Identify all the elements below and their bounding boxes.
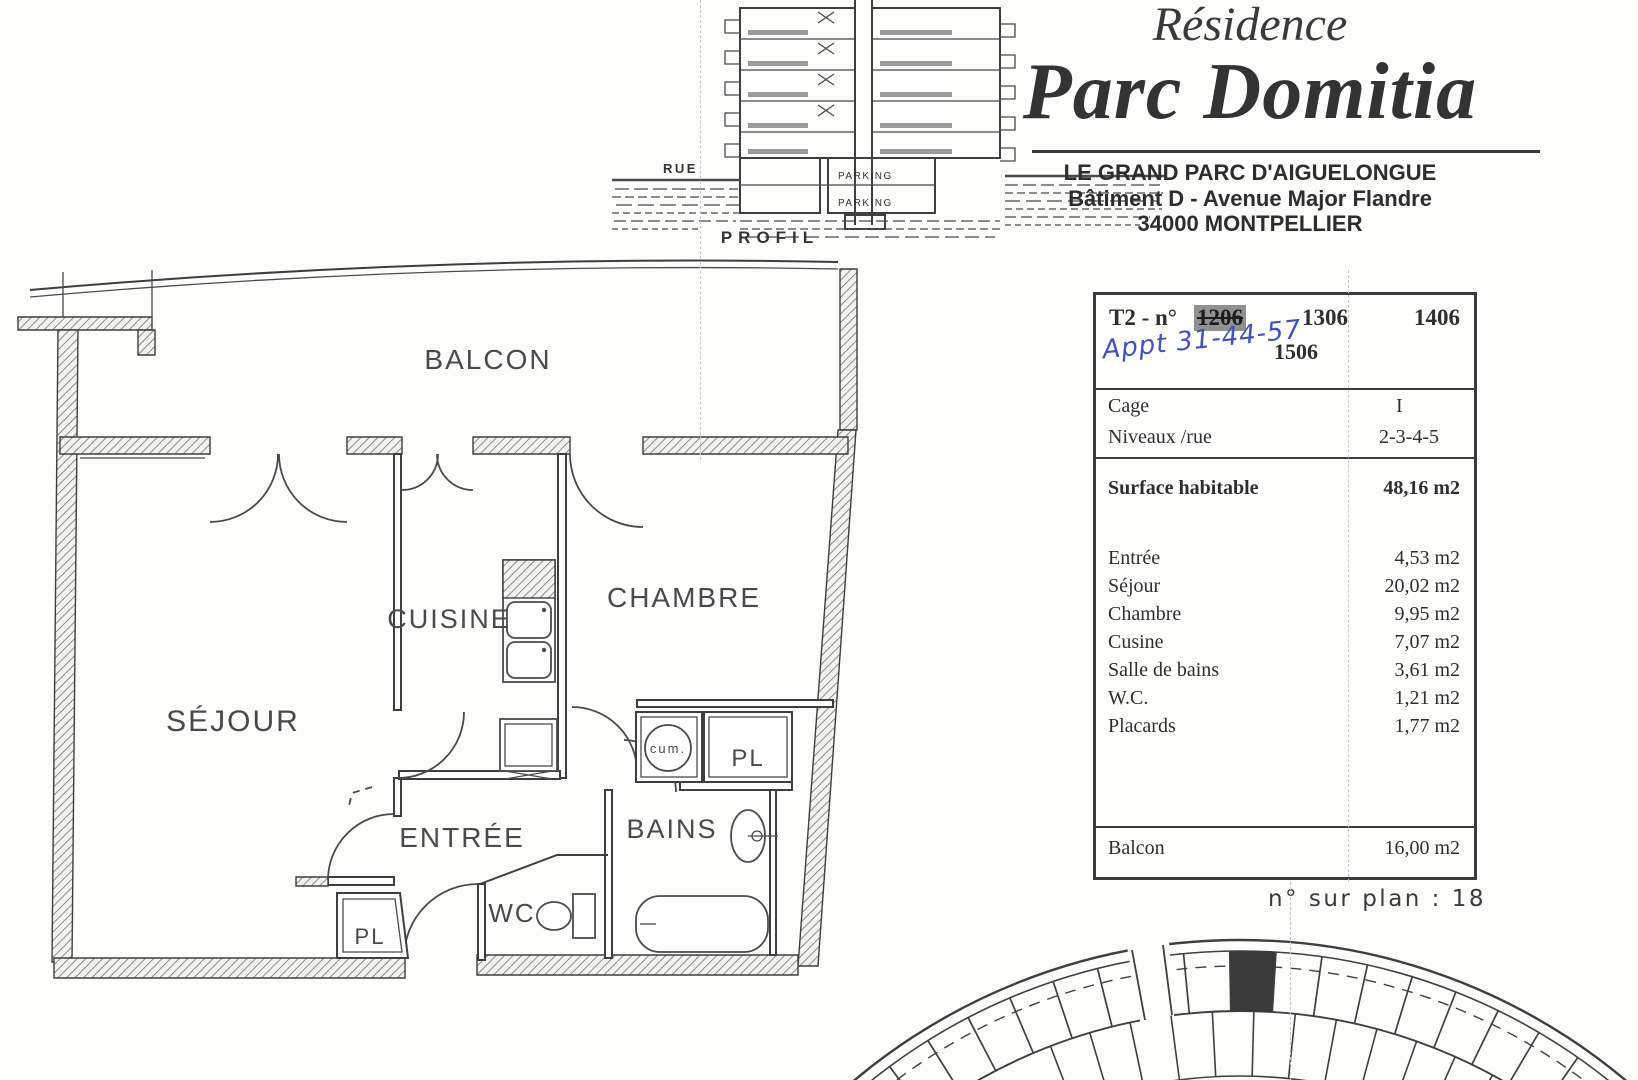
- room-label-pl-chambre: PL: [731, 745, 764, 772]
- balcony-outer-edge: [30, 261, 838, 318]
- unit-number-1306: 1306: [1302, 305, 1348, 331]
- residence-label: Résidence: [960, 0, 1540, 50]
- parking-level: PARKING PARKING: [740, 158, 935, 213]
- unit-number-1406: 1406: [1414, 305, 1460, 331]
- table-row-cusine: Cusine 7,07 m2: [1096, 631, 1474, 654]
- residence-name: Parc Domitia: [960, 52, 1540, 132]
- parking-label-1: PARKING: [838, 171, 893, 182]
- room-label-pl-entree: PL: [355, 924, 386, 949]
- table-row-salle-de-bains: Salle de bains 3,61 m2: [1096, 659, 1474, 682]
- floor-labels-illegible: [748, 30, 952, 154]
- toilet: [537, 894, 595, 938]
- crease-line: [1290, 882, 1291, 1080]
- interior-walls: [296, 454, 833, 960]
- apartment-floor-plan: BALCON: [18, 261, 857, 978]
- table-row-niveaux: Niveaux /rue 2-3-4-5: [1096, 426, 1474, 449]
- room-label-wc: WC: [488, 898, 535, 928]
- balcon-value: 16,00 m2: [1384, 837, 1460, 860]
- scanned-floorplan-document: PARKING PARKING RUE: [0, 0, 1638, 1080]
- water-heater-closet: cum.: [636, 712, 702, 782]
- title-underline: [1032, 150, 1540, 153]
- balcony-door-arcs: [210, 454, 643, 527]
- parking-label-2: PARKING: [838, 198, 893, 209]
- kitchen-unit: [500, 560, 557, 779]
- apartment-info-table: T2 - n° 1206 1306 1406 1506 Appt 31-44-5…: [1093, 292, 1477, 880]
- table-row-entree: Entrée 4,53 m2: [1096, 547, 1474, 570]
- info-table-header: T2 - n° 1206 1306 1406 1506 Appt 31-44-5…: [1096, 295, 1474, 388]
- kitchen-appliance: [500, 719, 557, 771]
- room-label-cum: cum.: [650, 741, 686, 756]
- cage-value: I: [1396, 395, 1403, 418]
- niveaux-value: 2-3-4-5: [1379, 426, 1439, 449]
- address-block: LE GRAND PARC D'AIGUELONGUE Bâtiment D -…: [1000, 160, 1500, 237]
- kitchen-sink-2: [507, 642, 551, 678]
- table-rule: [1096, 457, 1474, 459]
- residence-header: Résidence Parc Domitia: [960, 0, 1540, 132]
- profile-caption: PROFIL: [721, 228, 819, 247]
- surface-value: 48,16 m2: [1383, 477, 1460, 500]
- room-label-sejour: SÉJOUR: [166, 705, 300, 738]
- table-row-chambre: Chambre 9,95 m2: [1096, 603, 1474, 626]
- address-line-3: 34000 MONTPELLIER: [1000, 211, 1500, 237]
- bathtub: [636, 896, 768, 952]
- table-row-wc: W.C. 1,21 m2: [1096, 687, 1474, 710]
- room-label-entree: ENTRÉE: [399, 822, 525, 853]
- balcony-inner-wall: [60, 437, 848, 458]
- address-line-1: LE GRAND PARC D'AIGUELONGUE: [1000, 160, 1500, 186]
- table-row-balcon: Balcon 16,00 m2: [1096, 837, 1474, 860]
- table-row-cage: Cage I: [1096, 395, 1474, 418]
- table-rule: [1096, 826, 1474, 828]
- table-row-sejour: Séjour 20,02 m2: [1096, 575, 1474, 598]
- table-row-surface: Surface habitable 48,16 m2: [1096, 477, 1474, 500]
- room-label-chambre: CHAMBRE: [607, 582, 761, 613]
- highlighted-unit: [1230, 951, 1276, 1012]
- entree-closet: PL: [337, 893, 408, 958]
- niveaux-label: Niveaux /rue: [1108, 426, 1212, 449]
- room-label-cuisine: CUISINE: [387, 604, 511, 634]
- site-plan: [640, 927, 1638, 1080]
- cage-label: Cage: [1108, 395, 1149, 418]
- crease-line: [1348, 270, 1349, 882]
- chambre-closet: PL: [704, 712, 792, 782]
- crease-line: [700, 0, 701, 460]
- address-line-2: Bâtiment D - Avenue Major Flandre: [1000, 186, 1500, 212]
- surface-label: Surface habitable: [1108, 477, 1259, 500]
- kitchen-sink-1: [507, 602, 551, 638]
- table-rule: [1096, 388, 1474, 390]
- plan-number: n° sur plan : 18: [1236, 886, 1486, 912]
- table-row-placards: Placards 1,77 m2: [1096, 715, 1474, 738]
- room-label-balcon: BALCON: [424, 344, 551, 375]
- room-label-bains: BAINS: [626, 814, 717, 844]
- balcon-label: Balcon: [1108, 837, 1165, 860]
- street-label: RUE: [663, 161, 698, 176]
- type-label: T2 - n°: [1109, 305, 1177, 331]
